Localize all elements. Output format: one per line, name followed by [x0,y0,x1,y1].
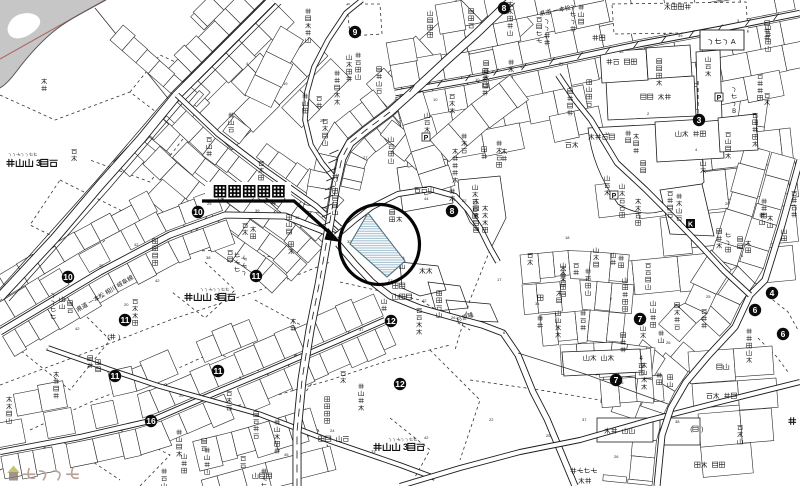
svg-text:): ) [118,334,120,341]
svg-text:37: 37 [582,417,587,422]
svg-text:): ) [334,182,336,188]
svg-text:12: 12 [386,316,396,326]
svg-text:11: 11 [111,371,120,381]
svg-text:10: 10 [193,207,203,217]
svg-text:4: 4 [770,288,775,298]
svg-text:27: 27 [363,155,368,160]
svg-text:44: 44 [424,196,429,201]
svg-text:42: 42 [75,326,80,331]
svg-text:42: 42 [422,298,427,303]
svg-text:A: A [731,37,736,46]
svg-text:8: 8 [502,3,507,13]
svg-text:22: 22 [99,263,104,268]
svg-text:34: 34 [535,301,540,306]
svg-text:45: 45 [284,452,289,457]
svg-text:6: 6 [753,305,758,315]
svg-text:20: 20 [179,393,184,398]
svg-text:11: 11 [121,315,130,325]
svg-text:11: 11 [252,271,261,281]
svg-text:8: 8 [450,206,455,216]
svg-text:38: 38 [619,49,624,54]
svg-text:42: 42 [424,435,429,440]
svg-text:22: 22 [489,417,494,422]
svg-text:P: P [424,135,429,142]
svg-text:42: 42 [134,242,139,247]
svg-text:39: 39 [678,33,683,38]
svg-text:6: 6 [781,329,786,339]
svg-text:P: P [717,95,722,102]
svg-text:10: 10 [63,272,73,282]
svg-text:37: 37 [359,327,364,332]
svg-text:10: 10 [433,97,438,102]
svg-text:9: 9 [353,27,358,37]
svg-text:26: 26 [614,454,619,459]
svg-text:B: B [732,109,736,115]
svg-text:10: 10 [475,77,480,82]
svg-text:12: 12 [395,379,405,389]
svg-text:3: 3 [214,292,219,302]
svg-text:7: 7 [638,314,643,324]
svg-text:38: 38 [206,255,211,260]
svg-text:21: 21 [559,61,564,66]
svg-text:18: 18 [565,235,570,240]
svg-text:26: 26 [320,118,325,123]
svg-text:25: 25 [546,433,551,438]
svg-text:38: 38 [675,419,680,424]
svg-text:42: 42 [155,278,160,283]
svg-text:39: 39 [255,208,260,213]
svg-text:34: 34 [605,131,610,136]
svg-text:45: 45 [520,64,525,69]
svg-text:20: 20 [725,201,730,206]
svg-text:K: K [688,221,693,228]
svg-text:24: 24 [330,428,335,433]
svg-text:22: 22 [462,198,467,203]
svg-text:20: 20 [124,302,129,307]
svg-text:): ) [701,426,703,433]
svg-text:26: 26 [451,315,456,320]
svg-text:(: ( [334,167,336,173]
svg-text:19: 19 [283,81,288,86]
svg-text:7: 7 [614,375,619,385]
svg-text:26: 26 [666,340,671,345]
svg-text:3: 3 [36,158,41,168]
svg-text:P: P [612,193,617,200]
svg-text:3: 3 [403,442,408,452]
svg-text:23: 23 [62,297,67,302]
svg-text:32: 32 [295,215,300,220]
svg-text:11: 11 [214,366,223,376]
svg-text:25: 25 [706,294,711,299]
svg-text:3: 3 [697,115,702,125]
svg-text:17: 17 [497,277,502,282]
svg-text:16: 16 [146,416,156,426]
